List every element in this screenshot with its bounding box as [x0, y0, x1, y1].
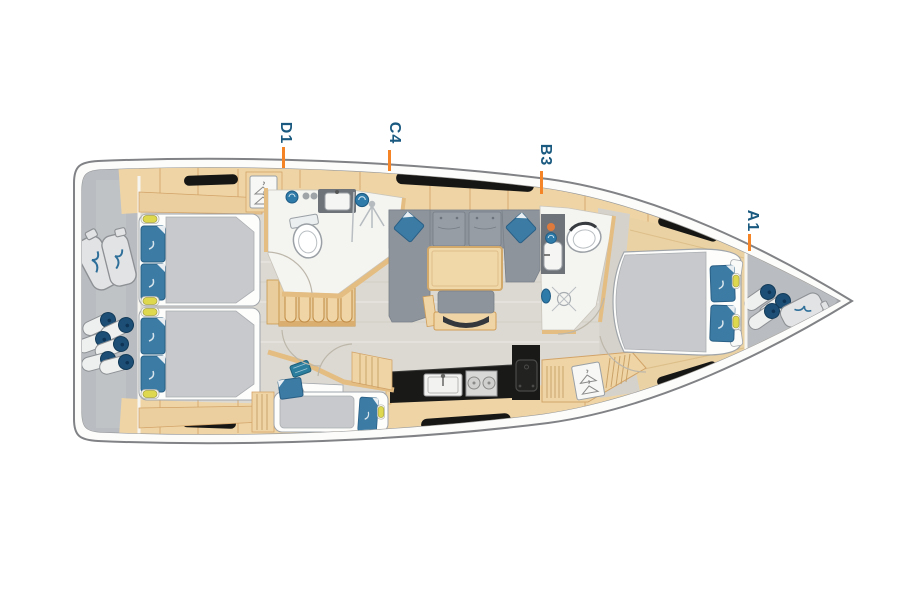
double-bed: [139, 308, 260, 401]
hanging-locker: [571, 362, 604, 400]
pillow: [141, 226, 165, 262]
reading-lamp-icon: [732, 273, 740, 288]
pillow: [141, 356, 165, 392]
reading-lamp-icon: [377, 405, 384, 419]
double-bed: [613, 249, 743, 355]
reading-lamp-icon: [141, 215, 159, 224]
aft-cabin-top: [139, 192, 262, 306]
label-tick-d1: [282, 147, 285, 168]
pillow: [710, 305, 735, 342]
cabin-label-c4: C4: [382, 111, 406, 155]
yacht-floorplan-image: D1 C4 B3 A1: [0, 0, 900, 600]
cabin-label-a1: A1: [740, 199, 764, 243]
head-starboard: [540, 206, 614, 334]
towel-icon: [286, 191, 298, 203]
double-bed: [139, 214, 260, 306]
label-tick-c4: [388, 150, 391, 171]
accessory-icon: [547, 223, 555, 231]
pillow: [141, 264, 165, 300]
cabin-label-d1: D1: [273, 111, 297, 155]
floorplan-drawing: [0, 0, 900, 600]
towel-icon: [542, 289, 551, 303]
towel-icon: [546, 233, 557, 244]
reading-lamp-icon: [141, 390, 159, 399]
pillow: [141, 318, 165, 354]
label-tick-a1: [748, 234, 751, 251]
reading-lamp-icon: [141, 297, 159, 306]
pillow: [710, 265, 735, 302]
towel-icon: [355, 193, 368, 206]
aft-cabin-bottom: [139, 308, 262, 429]
pillow: [358, 397, 379, 432]
galley-sink-icon: [424, 374, 462, 396]
stove-icon: [466, 371, 497, 396]
reading-lamp-icon: [732, 314, 740, 329]
oven-icon: [516, 360, 537, 391]
label-tick-b3: [540, 171, 543, 194]
bow-stowage: [742, 240, 838, 362]
cabin-label-b3: B3: [533, 133, 557, 177]
window-slot: [184, 174, 238, 186]
seat-cushion: [278, 377, 303, 399]
salon-table: [428, 247, 502, 290]
sink-icon: [325, 193, 350, 210]
sink-icon: [544, 242, 562, 270]
reading-lamp-icon: [141, 308, 159, 317]
